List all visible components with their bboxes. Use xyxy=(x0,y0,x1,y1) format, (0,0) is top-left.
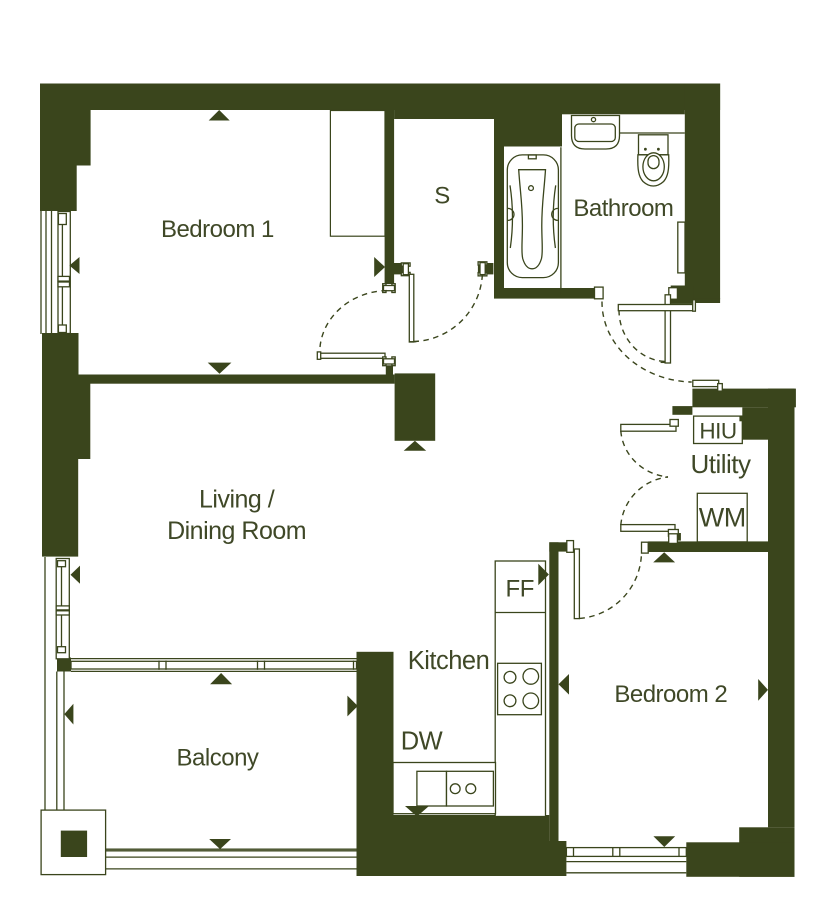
svg-text:Utility: Utility xyxy=(690,449,751,479)
svg-text:Living /: Living / xyxy=(199,486,275,514)
svg-text:HIU: HIU xyxy=(699,419,736,444)
svg-text:S: S xyxy=(434,182,450,209)
svg-text:Balcony: Balcony xyxy=(177,745,259,772)
svg-text:Bedroom 1: Bedroom 1 xyxy=(161,216,274,243)
svg-text:FF: FF xyxy=(506,576,534,603)
svg-text:DW: DW xyxy=(401,728,443,756)
svg-text:Kitchen: Kitchen xyxy=(408,647,490,675)
svg-text:Bathroom: Bathroom xyxy=(573,195,673,222)
svg-text:WM: WM xyxy=(699,503,746,533)
svg-text:Dining Room: Dining Room xyxy=(167,517,306,545)
svg-text:Bedroom 2: Bedroom 2 xyxy=(614,681,727,708)
